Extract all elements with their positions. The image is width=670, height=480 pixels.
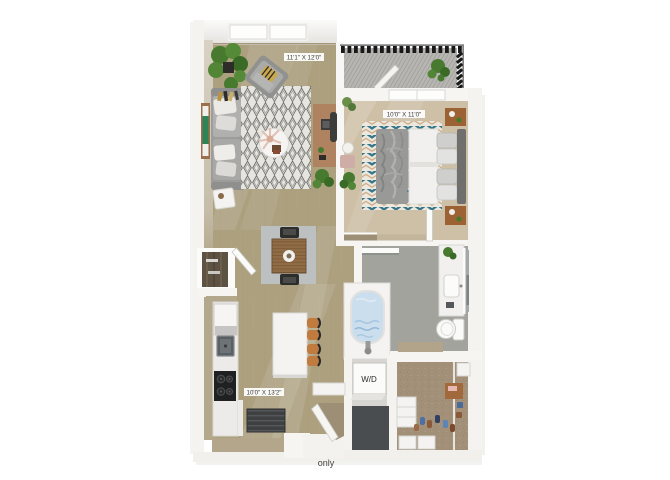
svg-text:10'0" X 13'2": 10'0" X 13'2": [247, 390, 282, 397]
svg-text:11'1" X 12'0": 11'1" X 12'0": [287, 55, 322, 62]
svg-text:10'0" X 11'0": 10'0" X 11'0": [387, 112, 422, 119]
svg-text:W/D: W/D: [361, 375, 377, 384]
svg-text:only: only: [318, 458, 335, 468]
